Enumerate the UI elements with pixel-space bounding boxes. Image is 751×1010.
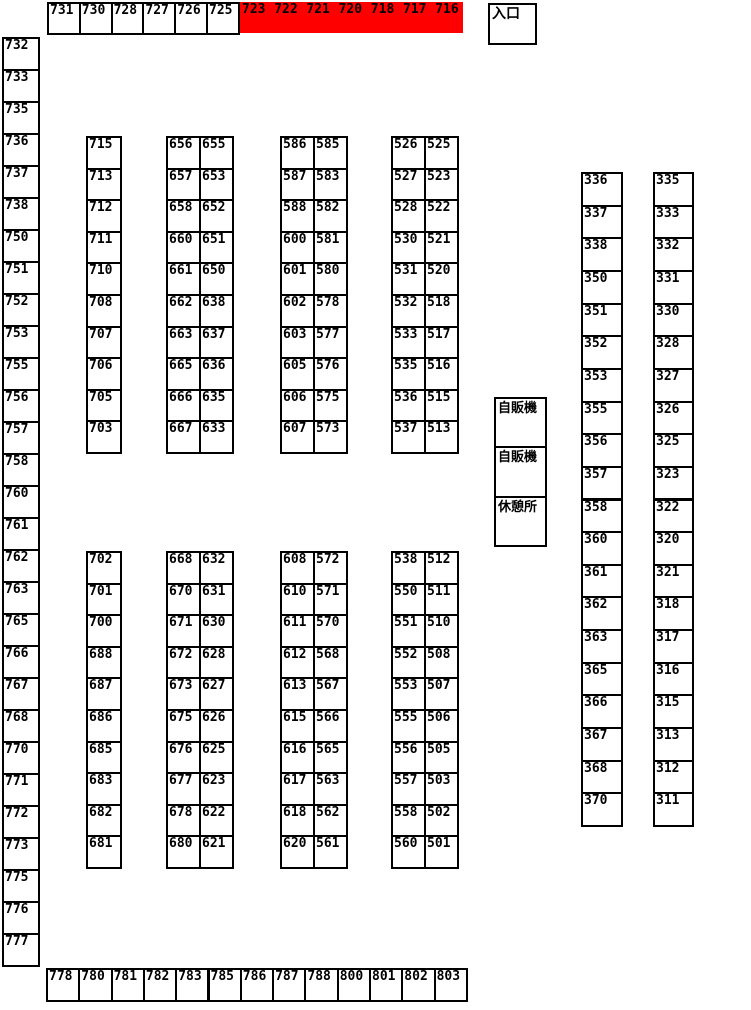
- booth-720: 720: [339, 3, 362, 17]
- booth-761: 761: [2, 517, 40, 551]
- booth-553: 553: [391, 677, 426, 711]
- entrance-box: 入口: [488, 3, 537, 45]
- booth-680: 680: [166, 835, 201, 869]
- booth-528: 528: [391, 199, 426, 233]
- booth-658: 658: [166, 199, 201, 233]
- booth-316: 316: [653, 662, 694, 697]
- booth-312: 312: [653, 760, 694, 795]
- booth-323: 323: [653, 466, 694, 501]
- booth-685: 685: [86, 741, 122, 775]
- booth-333: 333: [653, 205, 694, 240]
- booth-705: 705: [86, 389, 122, 423]
- booth-635: 635: [199, 389, 234, 423]
- booth-503: 503: [424, 772, 459, 806]
- booth-352: 352: [581, 335, 623, 370]
- booth-628: 628: [199, 646, 234, 680]
- booth-787: 787: [272, 968, 306, 1002]
- booth-566: 566: [313, 709, 348, 743]
- booth-788: 788: [304, 968, 338, 1002]
- booth-608: 608: [280, 551, 315, 585]
- booth-507: 507: [424, 677, 459, 711]
- booth-567: 567: [313, 677, 348, 711]
- booth-630: 630: [199, 614, 234, 648]
- facility-rest-area: 休憩所: [494, 496, 547, 547]
- booth-777: 777: [2, 933, 40, 967]
- booth-605: 605: [280, 357, 315, 391]
- booth-326: 326: [653, 401, 694, 436]
- booth-565: 565: [313, 741, 348, 775]
- booth-607: 607: [280, 420, 315, 454]
- booth-568: 568: [313, 646, 348, 680]
- booth-757: 757: [2, 421, 40, 455]
- booth-588: 588: [280, 199, 315, 233]
- booth-356: 356: [581, 433, 623, 468]
- booth-577: 577: [313, 326, 348, 360]
- booth-578: 578: [313, 294, 348, 328]
- booth-666: 666: [166, 389, 201, 423]
- booth-583: 583: [313, 168, 348, 202]
- booth-782: 782: [143, 968, 177, 1002]
- booth-701: 701: [86, 583, 122, 617]
- booth-776: 776: [2, 901, 40, 935]
- booth-557: 557: [391, 772, 426, 806]
- booth-770: 770: [2, 741, 40, 775]
- booth-760: 760: [2, 485, 40, 519]
- booth-600: 600: [280, 231, 315, 265]
- booth-575: 575: [313, 389, 348, 423]
- booth-737: 737: [2, 165, 40, 199]
- booth-571: 571: [313, 583, 348, 617]
- booth-668: 668: [166, 551, 201, 585]
- booth-765: 765: [2, 613, 40, 647]
- booth-551: 551: [391, 614, 426, 648]
- booth-317: 317: [653, 629, 694, 664]
- booth-555: 555: [391, 709, 426, 743]
- booth-650: 650: [199, 262, 234, 296]
- booth-728: 728: [111, 2, 145, 35]
- booth-727: 727: [142, 2, 176, 35]
- booth-638: 638: [199, 294, 234, 328]
- booth-780: 780: [78, 968, 112, 1002]
- booth-318: 318: [653, 596, 694, 631]
- booth-367: 367: [581, 727, 623, 762]
- booth-785: 785: [208, 968, 242, 1002]
- booth-803: 803: [434, 968, 468, 1002]
- booth-715: 715: [86, 136, 122, 170]
- booth-616: 616: [280, 741, 315, 775]
- booth-775: 775: [2, 869, 40, 903]
- booth-355: 355: [581, 401, 623, 436]
- booth-365: 365: [581, 662, 623, 697]
- booth-330: 330: [653, 303, 694, 338]
- booth-601: 601: [280, 262, 315, 296]
- booth-513: 513: [424, 420, 459, 454]
- booth-587: 587: [280, 168, 315, 202]
- booth-613: 613: [280, 677, 315, 711]
- booth-357: 357: [581, 466, 623, 501]
- booth-331: 331: [653, 270, 694, 305]
- booth-523: 523: [424, 168, 459, 202]
- booth-311: 311: [653, 792, 694, 827]
- booth-573: 573: [313, 420, 348, 454]
- facility-vending-machine-1: 自販機: [494, 397, 547, 448]
- booth-536: 536: [391, 389, 426, 423]
- booth-683: 683: [86, 772, 122, 806]
- booth-353: 353: [581, 368, 623, 403]
- booth-738: 738: [2, 197, 40, 231]
- booth-633: 633: [199, 420, 234, 454]
- booth-506: 506: [424, 709, 459, 743]
- booth-368: 368: [581, 760, 623, 795]
- booth-773: 773: [2, 837, 40, 871]
- booth-510: 510: [424, 614, 459, 648]
- booth-675: 675: [166, 709, 201, 743]
- booth-676: 676: [166, 741, 201, 775]
- booth-656: 656: [166, 136, 201, 170]
- booth-563: 563: [313, 772, 348, 806]
- booth-576: 576: [313, 357, 348, 391]
- booth-512: 512: [424, 551, 459, 585]
- booth-758: 758: [2, 453, 40, 487]
- booth-501: 501: [424, 835, 459, 869]
- booth-786: 786: [240, 968, 274, 1002]
- booth-735: 735: [2, 101, 40, 135]
- booth-732: 732: [2, 37, 40, 71]
- booth-623: 623: [199, 772, 234, 806]
- booth-651: 651: [199, 231, 234, 265]
- booth-713: 713: [86, 168, 122, 202]
- booth-337: 337: [581, 205, 623, 240]
- booth-731: 731: [47, 2, 81, 35]
- booth-533: 533: [391, 326, 426, 360]
- booth-801: 801: [369, 968, 403, 1002]
- booth-520: 520: [424, 262, 459, 296]
- booth-678: 678: [166, 804, 201, 838]
- booth-511: 511: [424, 583, 459, 617]
- booth-370: 370: [581, 792, 623, 827]
- highlighted-booth-block: 723722721720718717716: [238, 2, 463, 33]
- booth-585: 585: [313, 136, 348, 170]
- booth-767: 767: [2, 677, 40, 711]
- entrance-label: 入口: [492, 6, 520, 22]
- booth-505: 505: [424, 741, 459, 775]
- booth-710: 710: [86, 262, 122, 296]
- booth-771: 771: [2, 773, 40, 807]
- booth-721: 721: [306, 3, 329, 17]
- booth-621: 621: [199, 835, 234, 869]
- booth-602: 602: [280, 294, 315, 328]
- booth-580: 580: [313, 262, 348, 296]
- booth-561: 561: [313, 835, 348, 869]
- booth-751: 751: [2, 261, 40, 295]
- booth-615: 615: [280, 709, 315, 743]
- booth-618: 618: [280, 804, 315, 838]
- booth-328: 328: [653, 335, 694, 370]
- booth-707: 707: [86, 326, 122, 360]
- booth-562: 562: [313, 804, 348, 838]
- booth-617: 617: [280, 772, 315, 806]
- booth-315: 315: [653, 694, 694, 729]
- booth-620: 620: [280, 835, 315, 869]
- booth-687: 687: [86, 677, 122, 711]
- booth-502: 502: [424, 804, 459, 838]
- booth-632: 632: [199, 551, 234, 585]
- booth-717: 717: [403, 3, 426, 17]
- booth-525: 525: [424, 136, 459, 170]
- booth-662: 662: [166, 294, 201, 328]
- booth-752: 752: [2, 293, 40, 327]
- booth-661: 661: [166, 262, 201, 296]
- booth-722: 722: [274, 3, 297, 17]
- booth-781: 781: [111, 968, 145, 1002]
- booth-530: 530: [391, 231, 426, 265]
- booth-327: 327: [653, 368, 694, 403]
- booth-627: 627: [199, 677, 234, 711]
- booth-800: 800: [337, 968, 371, 1002]
- booth-725: 725: [206, 2, 240, 35]
- booth-313: 313: [653, 727, 694, 762]
- booth-362: 362: [581, 596, 623, 631]
- booth-610: 610: [280, 583, 315, 617]
- booth-726: 726: [174, 2, 208, 35]
- booth-672: 672: [166, 646, 201, 680]
- booth-508: 508: [424, 646, 459, 680]
- booth-686: 686: [86, 709, 122, 743]
- booth-711: 711: [86, 231, 122, 265]
- booth-733: 733: [2, 69, 40, 103]
- booth-527: 527: [391, 168, 426, 202]
- booth-572: 572: [313, 551, 348, 585]
- booth-335: 335: [653, 172, 694, 207]
- booth-681: 681: [86, 835, 122, 869]
- booth-736: 736: [2, 133, 40, 167]
- booth-320: 320: [653, 531, 694, 566]
- booth-531: 531: [391, 262, 426, 296]
- booth-floor-map: 723722721720718717716 入口 731730728727726…: [0, 0, 751, 1010]
- booth-750: 750: [2, 229, 40, 263]
- booth-537: 537: [391, 420, 426, 454]
- booth-522: 522: [424, 199, 459, 233]
- booth-723: 723: [242, 3, 265, 17]
- booth-560: 560: [391, 835, 426, 869]
- booth-636: 636: [199, 357, 234, 391]
- booth-762: 762: [2, 549, 40, 583]
- booth-802: 802: [401, 968, 435, 1002]
- booth-663: 663: [166, 326, 201, 360]
- booth-586: 586: [280, 136, 315, 170]
- booth-351: 351: [581, 303, 623, 338]
- booth-637: 637: [199, 326, 234, 360]
- booth-521: 521: [424, 231, 459, 265]
- booth-558: 558: [391, 804, 426, 838]
- booth-612: 612: [280, 646, 315, 680]
- booth-325: 325: [653, 433, 694, 468]
- booth-338: 338: [581, 237, 623, 272]
- booth-570: 570: [313, 614, 348, 648]
- booth-625: 625: [199, 741, 234, 775]
- facility-vending-machine-2: 自販機: [494, 446, 547, 497]
- booth-712: 712: [86, 199, 122, 233]
- booth-517: 517: [424, 326, 459, 360]
- booth-768: 768: [2, 709, 40, 743]
- booth-783: 783: [175, 968, 209, 1002]
- booth-515: 515: [424, 389, 459, 423]
- booth-703: 703: [86, 420, 122, 454]
- booth-516: 516: [424, 357, 459, 391]
- booth-321: 321: [653, 564, 694, 599]
- booth-358: 358: [581, 499, 623, 534]
- booth-611: 611: [280, 614, 315, 648]
- booth-606: 606: [280, 389, 315, 423]
- booth-518: 518: [424, 294, 459, 328]
- booth-755: 755: [2, 357, 40, 391]
- booth-756: 756: [2, 389, 40, 423]
- booth-673: 673: [166, 677, 201, 711]
- booth-361: 361: [581, 564, 623, 599]
- booth-671: 671: [166, 614, 201, 648]
- booth-538: 538: [391, 551, 426, 585]
- booth-322: 322: [653, 499, 694, 534]
- booth-657: 657: [166, 168, 201, 202]
- booth-700: 700: [86, 614, 122, 648]
- booth-702: 702: [86, 551, 122, 585]
- booth-708: 708: [86, 294, 122, 328]
- booth-350: 350: [581, 270, 623, 305]
- booth-665: 665: [166, 357, 201, 391]
- booth-763: 763: [2, 581, 40, 615]
- booth-667: 667: [166, 420, 201, 454]
- booth-677: 677: [166, 772, 201, 806]
- booth-730: 730: [79, 2, 113, 35]
- booth-581: 581: [313, 231, 348, 265]
- booth-363: 363: [581, 629, 623, 664]
- booth-552: 552: [391, 646, 426, 680]
- booth-682: 682: [86, 804, 122, 838]
- booth-753: 753: [2, 325, 40, 359]
- booth-360: 360: [581, 531, 623, 566]
- booth-706: 706: [86, 357, 122, 391]
- booth-622: 622: [199, 804, 234, 838]
- booth-766: 766: [2, 645, 40, 679]
- booth-603: 603: [280, 326, 315, 360]
- booth-626: 626: [199, 709, 234, 743]
- booth-655: 655: [199, 136, 234, 170]
- booth-778: 778: [46, 968, 80, 1002]
- booth-631: 631: [199, 583, 234, 617]
- booth-332: 332: [653, 237, 694, 272]
- booth-582: 582: [313, 199, 348, 233]
- booth-526: 526: [391, 136, 426, 170]
- booth-556: 556: [391, 741, 426, 775]
- booth-532: 532: [391, 294, 426, 328]
- booth-652: 652: [199, 199, 234, 233]
- booth-366: 366: [581, 694, 623, 729]
- booth-550: 550: [391, 583, 426, 617]
- booth-535: 535: [391, 357, 426, 391]
- booth-718: 718: [371, 3, 394, 17]
- booth-336: 336: [581, 172, 623, 207]
- booth-688: 688: [86, 646, 122, 680]
- booth-772: 772: [2, 805, 40, 839]
- booth-660: 660: [166, 231, 201, 265]
- booth-716: 716: [435, 3, 458, 17]
- booth-653: 653: [199, 168, 234, 202]
- booth-670: 670: [166, 583, 201, 617]
